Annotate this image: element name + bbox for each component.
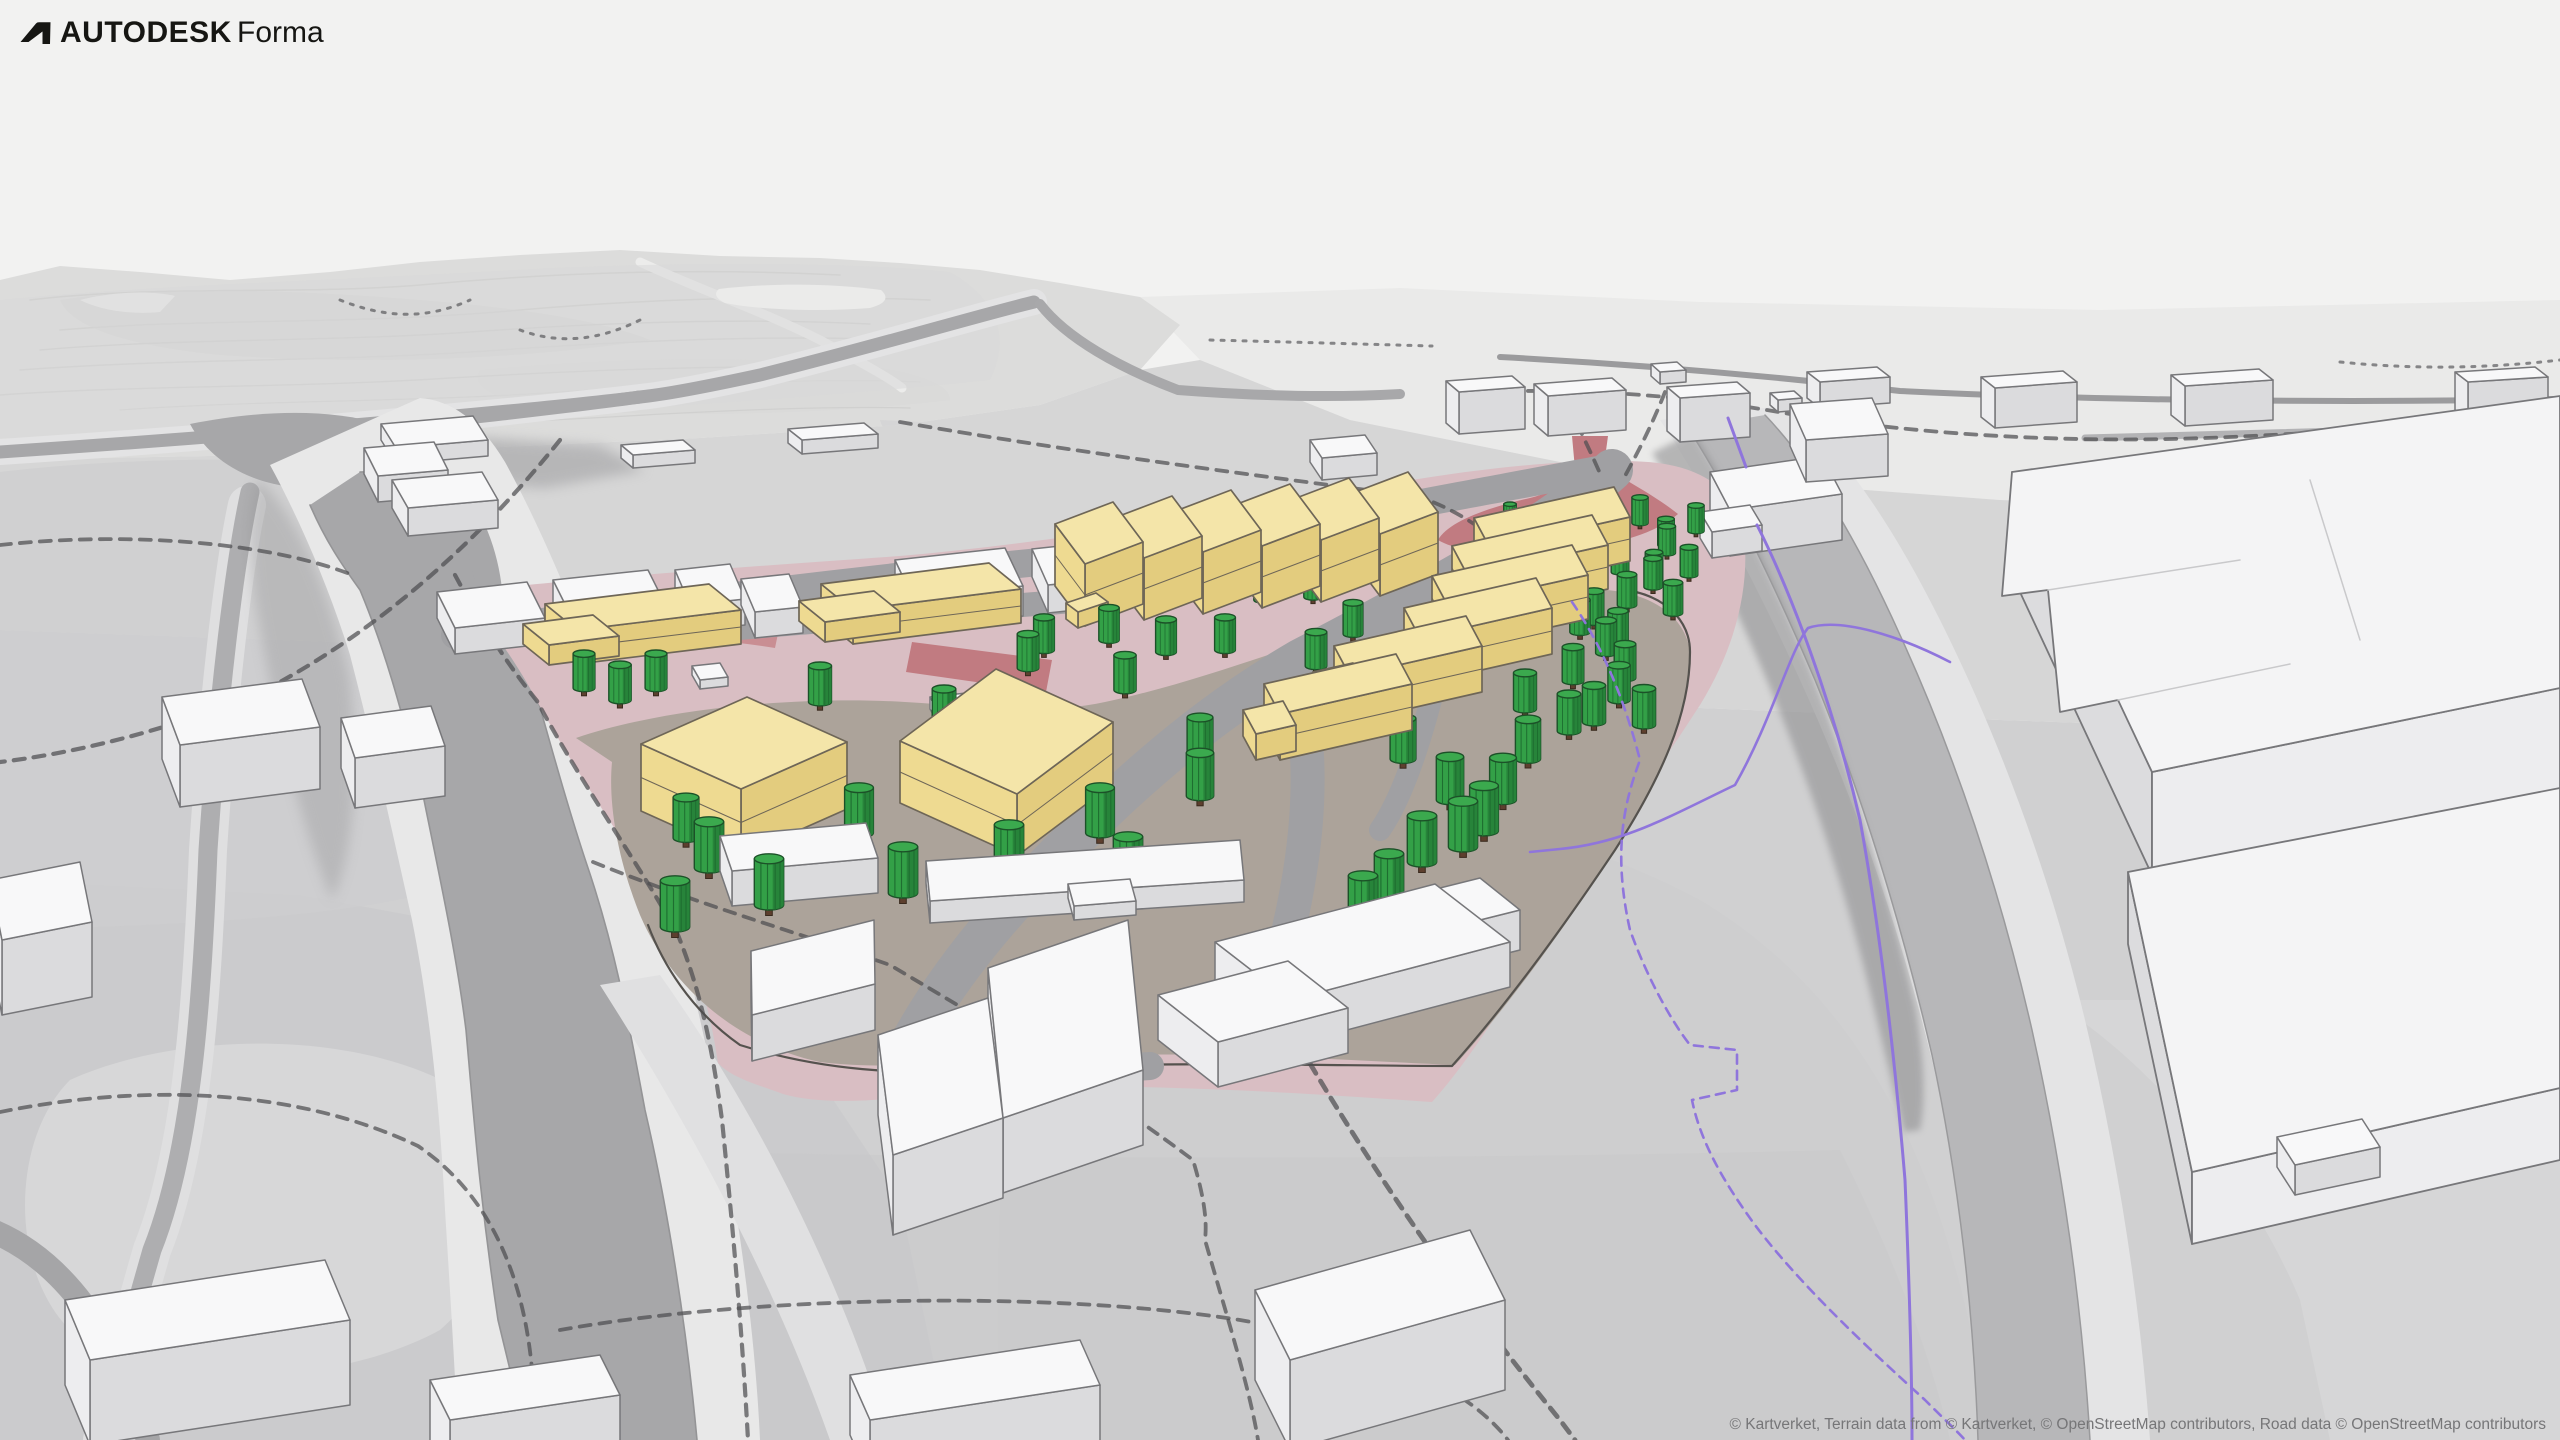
- svg-text:Forma: Forma: [237, 16, 324, 49]
- svg-text:AUTODESK: AUTODESK: [60, 16, 232, 49]
- svg-text:© Kartverket, Terrain data fro: © Kartverket, Terrain data from © Kartve…: [1730, 1416, 2547, 1433]
